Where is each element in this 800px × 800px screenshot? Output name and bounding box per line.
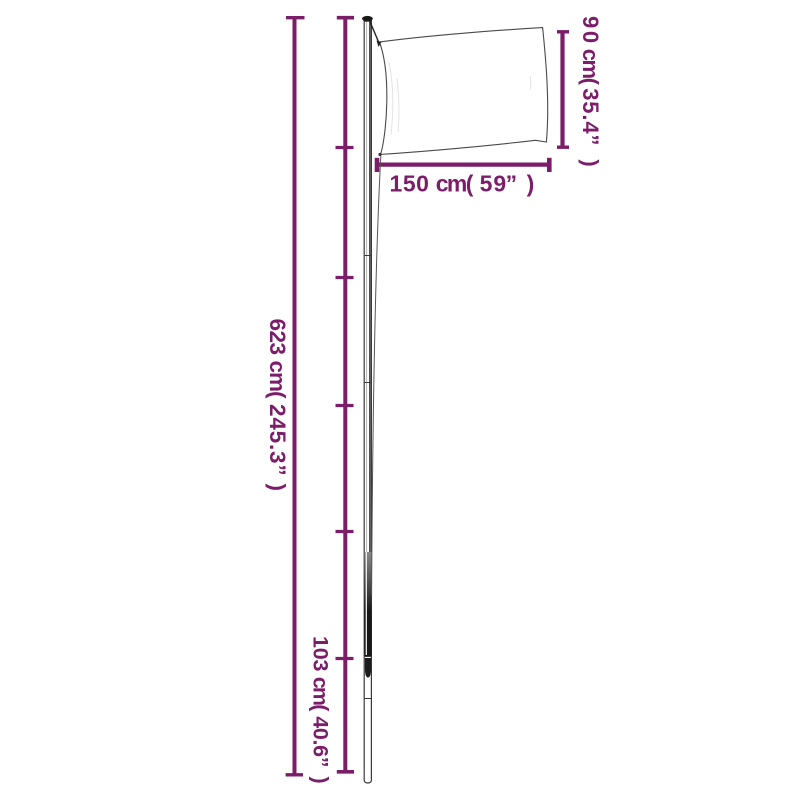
svg-text:150cm(59”): 150cm(59”) xyxy=(390,171,535,197)
svg-text:90cm(35.4”): 90cm(35.4”) xyxy=(578,16,603,167)
svg-text:623cm(245.3”): 623cm(245.3”) xyxy=(265,319,290,491)
